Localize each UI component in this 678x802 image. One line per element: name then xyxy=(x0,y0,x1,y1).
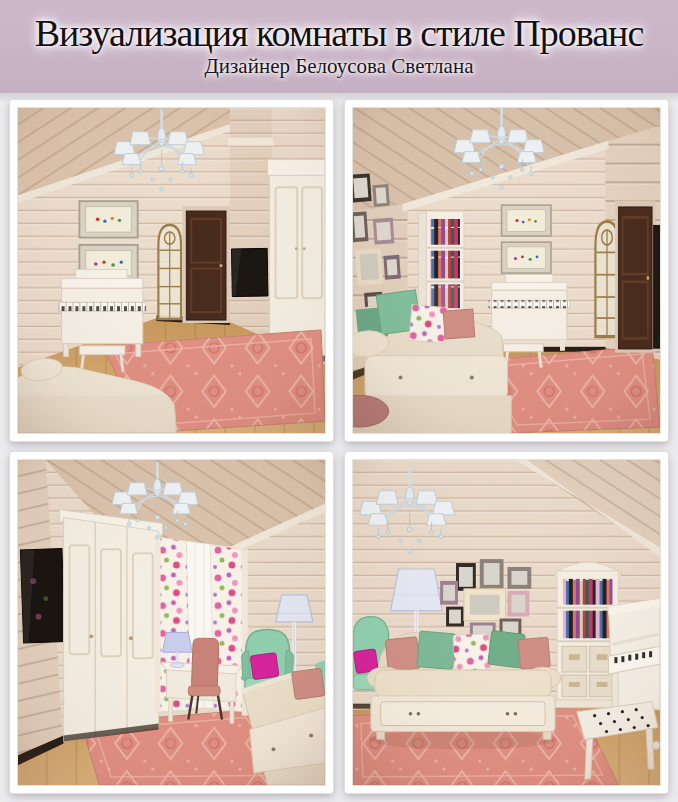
render-gallery xyxy=(0,93,678,802)
render-image-bottom-left xyxy=(17,459,326,786)
designer-subtitle: Дизайнер Белоусова Светлана xyxy=(205,54,474,79)
render-card-top-left xyxy=(10,100,333,441)
vignette xyxy=(18,460,325,785)
vignette xyxy=(353,108,660,433)
render-image-top-left xyxy=(17,107,326,434)
poster-header: Визуализация комнаты в стиле Прованс Диз… xyxy=(0,0,678,93)
render-card-bottom-right xyxy=(345,452,668,793)
vignette xyxy=(18,108,325,433)
render-image-bottom-right xyxy=(352,459,661,786)
render-card-top-right xyxy=(345,100,668,441)
render-image-top-right xyxy=(352,107,661,434)
vignette xyxy=(353,460,660,785)
page-title: Визуализация комнаты в стиле Прованс xyxy=(35,14,644,53)
poster-page: Визуализация комнаты в стиле Прованс Диз… xyxy=(0,0,678,802)
render-card-bottom-left xyxy=(10,452,333,793)
